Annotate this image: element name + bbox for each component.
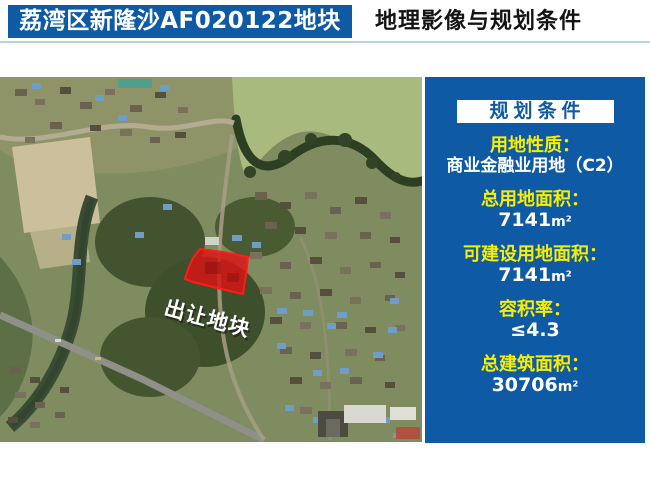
tree xyxy=(305,133,317,145)
item-label: 总建筑面积： xyxy=(425,354,645,375)
item-unit: m² xyxy=(551,269,572,285)
item-value: 30706m² xyxy=(425,375,645,398)
header-title-box: 荔湾区新隆沙AF020122地块 xyxy=(8,5,352,38)
satellite-map-svg: 出让地块 出让地块 xyxy=(0,77,422,442)
item-value: 商业金融业用地（C2） xyxy=(425,156,645,178)
item-value: 7141m² xyxy=(425,210,645,233)
panel-title-box: 规划条件 xyxy=(457,100,614,123)
slide: 荔湾区新隆沙AF020122地块 地理影像与规划条件 xyxy=(0,0,650,488)
item-unit: m² xyxy=(558,379,579,395)
tree xyxy=(391,172,401,182)
light-roof xyxy=(205,237,219,245)
item-label: 可建设用地面积： xyxy=(425,244,645,265)
page-title: 地理影像与规划条件 xyxy=(375,5,582,38)
panel-items: 用地性质： 商业金融业用地（C2） 总用地面积： 7141m² 可建设用地面积：… xyxy=(425,135,645,398)
item-value: ≤4.3 xyxy=(425,320,645,343)
car xyxy=(55,339,61,342)
parcel-title: 荔湾区新隆沙AF020122地块 xyxy=(19,8,341,34)
satellite-map: 出让地块 出让地块 xyxy=(0,77,422,442)
item-value: 7141m² xyxy=(425,265,645,288)
tree xyxy=(366,157,378,169)
tree xyxy=(244,166,256,178)
item-label: 用地性质： xyxy=(425,135,645,156)
planning-panel: 规划条件 用地性质： 商业金融业用地（C2） 总用地面积： 7141m² 可建设… xyxy=(425,77,645,443)
tree xyxy=(278,150,292,164)
header-divider xyxy=(0,41,650,43)
car xyxy=(95,357,101,360)
panel-item-total-floor-area: 总建筑面积： 30706m² xyxy=(425,354,645,398)
tree xyxy=(338,133,352,147)
item-label: 总用地面积： xyxy=(425,189,645,210)
panel-item-total-land-area: 总用地面积： 7141m² xyxy=(425,189,645,233)
panel-item-land-use: 用地性质： 商业金融业用地（C2） xyxy=(425,135,645,178)
panel-title: 规划条件 xyxy=(489,100,585,122)
parcel-inner-shade xyxy=(227,273,239,282)
panel-item-buildable-land-area: 可建设用地面积： 7141m² xyxy=(425,244,645,288)
item-unit: m² xyxy=(551,214,572,230)
parcel-inner-shade xyxy=(205,262,221,274)
item-label: 容积率： xyxy=(425,299,645,320)
panel-item-plot-ratio: 容积率： ≤4.3 xyxy=(425,299,645,343)
